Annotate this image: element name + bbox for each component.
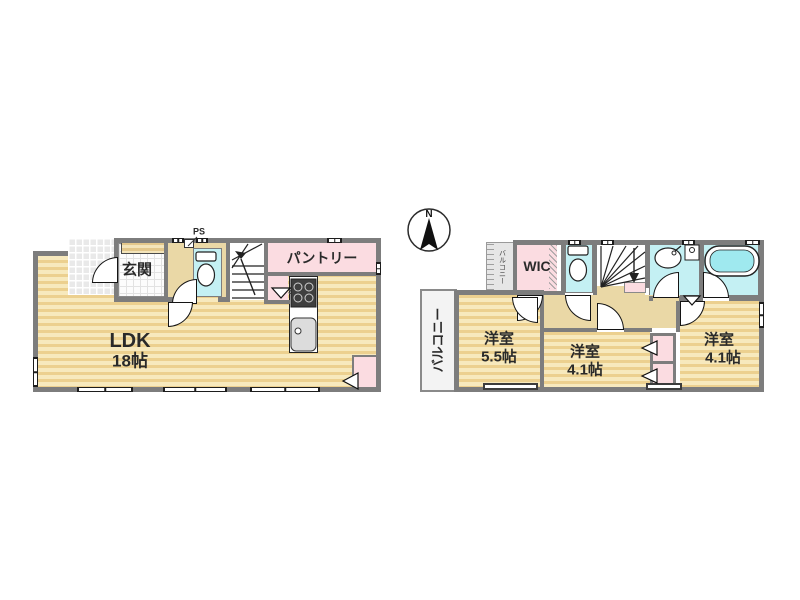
- stairs-treads-2f: [601, 246, 645, 287]
- ps-leader-line: [188, 237, 197, 246]
- compass-north-label: N: [425, 209, 432, 220]
- toilet-icon-1f: [196, 252, 216, 286]
- fixtures-overlay: N: [0, 0, 800, 600]
- stove-icon: [291, 279, 316, 307]
- closet-arrow-2f-bottom: [642, 369, 657, 383]
- stairs-down-arrow: [629, 248, 639, 283]
- closet-arrow-2f-top: [642, 341, 657, 355]
- toilet-icon-2f: [568, 246, 588, 281]
- stairs-up-arrow: [235, 251, 255, 295]
- opening-chevron-1f: [272, 288, 290, 298]
- bathtub-icon: [705, 246, 759, 276]
- kitchen-sink-icon: [291, 318, 316, 351]
- opening-chevron-2f: [684, 296, 700, 305]
- washing-machine-icon: [685, 245, 699, 260]
- closet-arrow-1f: [343, 373, 358, 389]
- floorplan-canvas: PS 玄関 パントリー PS LDK 18帖: [0, 0, 800, 600]
- compass-icon: N: [408, 209, 450, 251]
- washbasin-icon: [655, 246, 681, 268]
